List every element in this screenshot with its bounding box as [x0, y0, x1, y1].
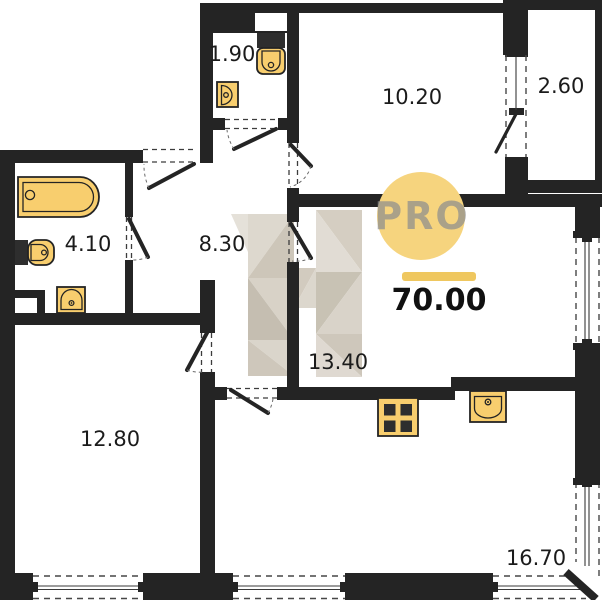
room-area-label-bedroom2: 12.80: [80, 427, 140, 451]
room-area-label-kitchen: 16.70: [506, 546, 566, 570]
room-area-label-living: 10.20: [382, 85, 442, 109]
total-area-underline: [402, 272, 476, 281]
room-area-label-wc: 1.90: [209, 42, 256, 66]
room-area-label-balcony: 2.60: [538, 74, 585, 98]
bathtub-icon: [18, 177, 99, 217]
room-area-label-bedroom: 13.40: [308, 350, 368, 374]
floor-plan: PRO 70.00 1.90 10.20 2.60 4.10 8.30 13.4…: [0, 0, 602, 600]
total-area-value: 70.00: [392, 283, 487, 318]
room-top-door-leaf: [291, 145, 311, 166]
entrance-door-leaf: [149, 164, 194, 188]
wc-door-leaf: [234, 129, 276, 149]
sink-icon-bathroom: [57, 287, 85, 313]
toilet-icon-bathroom: [15, 240, 54, 265]
kitchen-door-leaf: [231, 390, 268, 413]
pro-logo: PRO: [374, 172, 469, 260]
sink-icon-wc: [217, 82, 238, 107]
kitchen-sink-icon: [470, 391, 506, 422]
floor-plan-canvas: PRO 70.00 1.90 10.20 2.60 4.10 8.30 13.4…: [0, 0, 602, 600]
room-left-door-leaf: [187, 331, 208, 370]
room-area-label-hallway: 8.30: [199, 232, 246, 256]
room-area-label-bathroom: 4.10: [65, 232, 112, 256]
pro-logo-text: PRO: [374, 194, 469, 238]
stove-icon: [378, 398, 418, 436]
toilet-icon-wc: [257, 33, 285, 74]
